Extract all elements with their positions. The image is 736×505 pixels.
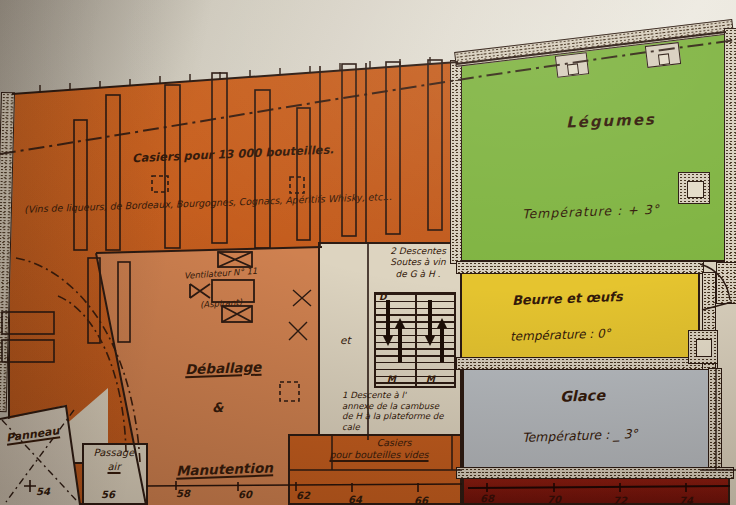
glace-room — [462, 368, 710, 472]
air-label: air — [84, 460, 144, 473]
staircase-divider — [415, 294, 417, 386]
stair-letter-m-right: M — [426, 374, 435, 386]
frame-number-70: 70 — [547, 494, 561, 505]
pillar-notch-2-core — [658, 53, 670, 65]
wall-wine-green-divider — [450, 60, 462, 264]
plan-photo: Casiers pour 13 000 bouteilles. (Vins de… — [0, 0, 736, 505]
handling-label-1: Déballage — [185, 359, 262, 379]
wall-beurre-top — [456, 261, 704, 274]
handling-label-2: Manutention — [176, 459, 274, 480]
handling-amp: & — [212, 400, 223, 417]
pillar-notch-1-core — [567, 63, 579, 75]
wall-glace-bottom — [456, 467, 734, 479]
wall-legumes-right — [724, 28, 736, 264]
wall-beurre-bottom — [456, 357, 718, 370]
frame-number-56: 56 — [101, 489, 115, 500]
pillar-notch-1 — [555, 52, 589, 78]
legumes-room — [456, 28, 726, 262]
legumes-label: Légumes — [566, 110, 657, 133]
frame-number-72: 72 — [613, 495, 627, 505]
pillar-notch-2 — [645, 42, 681, 68]
frame-number-64: 64 — [348, 494, 362, 505]
et-label: et — [340, 334, 351, 348]
frame-number-66: 66 — [414, 495, 428, 505]
glace-label: Glace — [560, 386, 606, 406]
pillar-beurre — [688, 330, 718, 364]
beurre-oeufs-room — [460, 270, 700, 362]
pillar-beurre-core — [696, 339, 712, 357]
frame-number-58: 58 — [176, 488, 190, 499]
frame-number-54: 54 — [36, 486, 50, 497]
pillar-legumes — [678, 172, 710, 204]
frame-number-74: 74 — [679, 495, 693, 505]
frame-number-68: 68 — [480, 493, 494, 504]
frame-number-60: 60 — [238, 489, 252, 500]
stair-letter-m-left: M — [387, 374, 396, 386]
pillar-legumes-core — [687, 181, 704, 198]
passage-label: Passage — [84, 446, 144, 459]
two-descents-label: 2 Descentes Soutes à vin de G à H . — [372, 246, 464, 280]
empty-bottles-label-2: pour bouteilles vides — [298, 449, 460, 461]
stair-letter-d: D — [379, 292, 386, 304]
empty-bottles-label-1: Casiers — [330, 437, 458, 449]
wall-right-patch — [716, 262, 736, 304]
frame-number-62: 62 — [296, 490, 310, 501]
one-descent-label: 1 Descente à l' annexe de la cambuse de … — [342, 390, 466, 433]
wall-glace-right — [708, 368, 722, 474]
